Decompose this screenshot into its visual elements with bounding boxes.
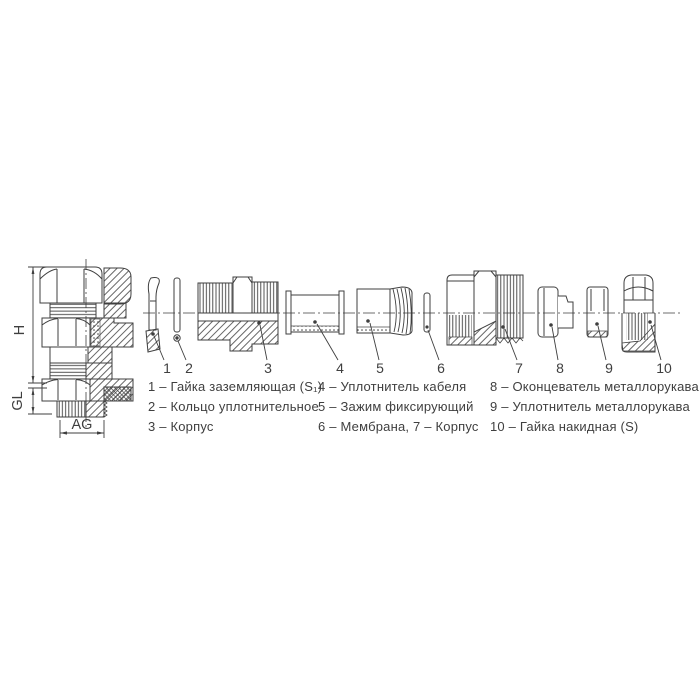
- part-number-6: 6: [437, 360, 445, 376]
- part-4-cable-seal: [286, 291, 344, 334]
- assembled-view: H GL AG: [10, 259, 133, 438]
- part-1-grounding-nut: [146, 278, 160, 352]
- part-8-hose-end-fitting: [538, 287, 573, 337]
- assembled-thread-band-lower: [50, 363, 112, 379]
- part-2-sealing-ring: [174, 278, 180, 341]
- part-number-8: 8: [556, 360, 564, 376]
- part-number-1: 1: [163, 360, 171, 376]
- cable-gland-drawing-page: H GL AG: [0, 0, 700, 700]
- assembled-upper-hex: [42, 318, 133, 347]
- assembled-top-nut: [40, 267, 131, 304]
- assembled-body-middle: [50, 347, 112, 363]
- dimension-ag: AG: [60, 417, 104, 438]
- part-5-fixing-clamp: [357, 287, 412, 335]
- dim-ag-label: AG: [72, 417, 93, 433]
- part-9-hose-seal: [587, 287, 608, 337]
- part-number-5: 5: [376, 360, 384, 376]
- part-number-2: 2: [185, 360, 193, 376]
- assembled-entry-thread: [57, 401, 107, 417]
- part-number-10: 10: [656, 360, 672, 376]
- part-number-3: 3: [264, 360, 272, 376]
- part-number-4: 4: [336, 360, 344, 376]
- exploded-view: 1 2 3 4 5 6 7 8 9 10: [143, 271, 682, 376]
- dim-h-label: H: [12, 325, 28, 335]
- part-number-7: 7: [515, 360, 523, 376]
- part-number-9: 9: [605, 360, 613, 376]
- dim-gl-label: GL: [10, 391, 26, 410]
- assembled-bottom-hex: [42, 379, 133, 401]
- technical-drawing: H GL AG: [0, 0, 700, 700]
- part-7-body: [447, 271, 523, 345]
- part-10-coupling-nut: [622, 275, 655, 352]
- part-3-body: [198, 277, 278, 351]
- part-numbers: 1 2 3 4 5 6 7 8 9 10: [163, 360, 672, 376]
- assembled-thread-band-upper: [50, 303, 126, 318]
